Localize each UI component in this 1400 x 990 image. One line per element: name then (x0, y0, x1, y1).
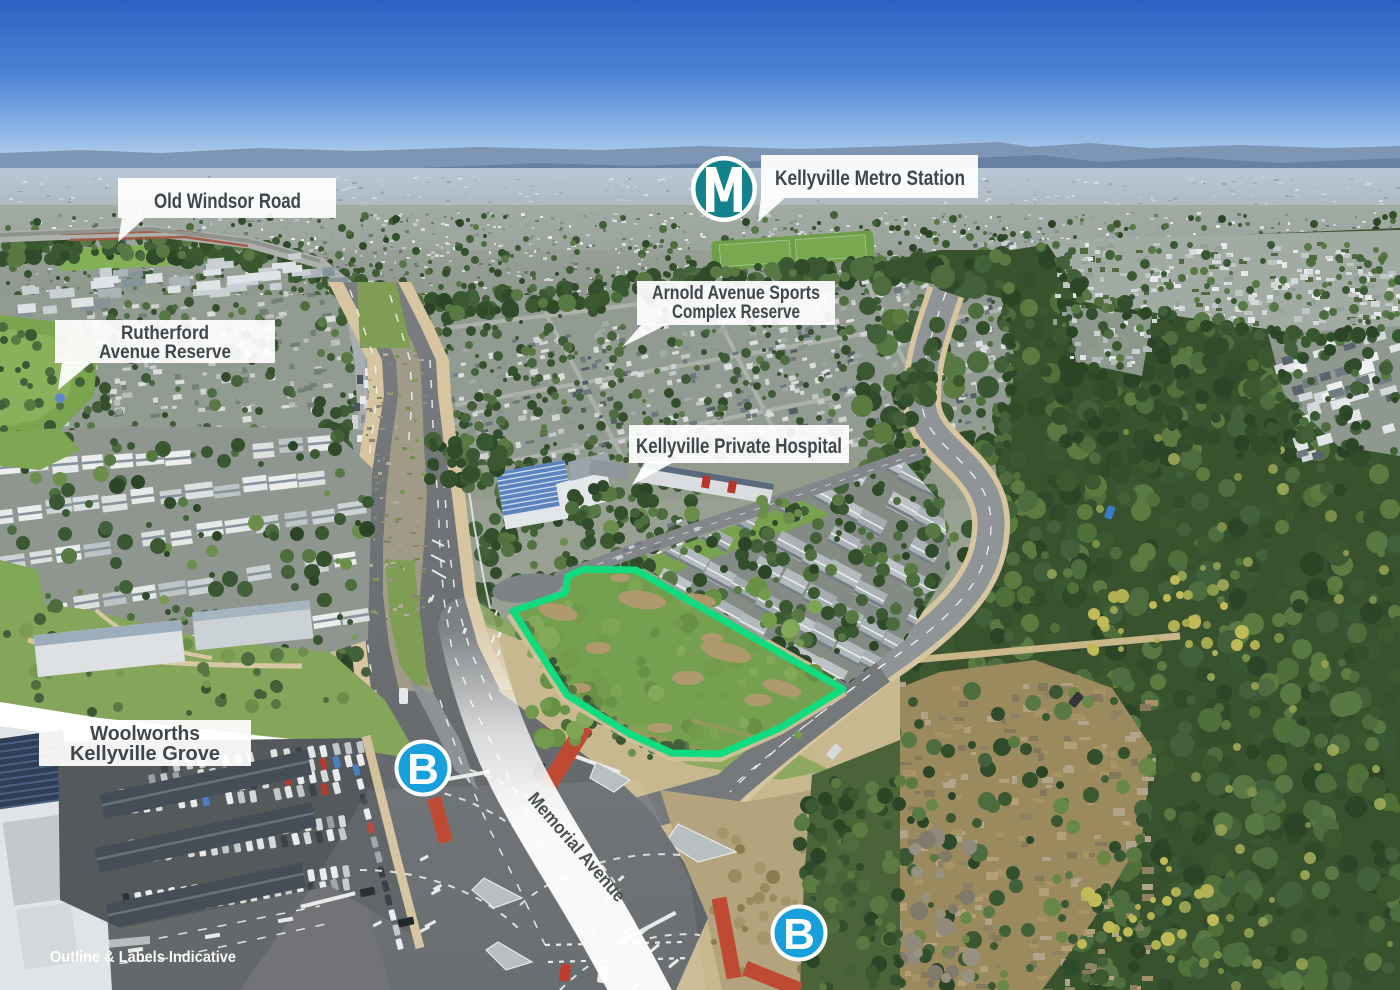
svg-text:Woolworths: Woolworths (90, 723, 200, 745)
svg-text:B: B (407, 745, 439, 794)
svg-text:Kellyville Grove: Kellyville Grove (70, 743, 220, 765)
svg-text:Rutherford: Rutherford (121, 323, 209, 344)
svg-text:Complex Reserve: Complex Reserve (672, 302, 800, 323)
svg-text:Arnold Avenue Sports: Arnold Avenue Sports (652, 283, 820, 304)
svg-text:Kellyville Private Hospital: Kellyville Private Hospital (636, 435, 842, 458)
svg-text:Avenue Reserve: Avenue Reserve (99, 342, 231, 363)
svg-text:Old Windsor Road: Old Windsor Road (154, 190, 301, 213)
svg-text:Kellyville Metro Station: Kellyville Metro Station (775, 167, 965, 190)
